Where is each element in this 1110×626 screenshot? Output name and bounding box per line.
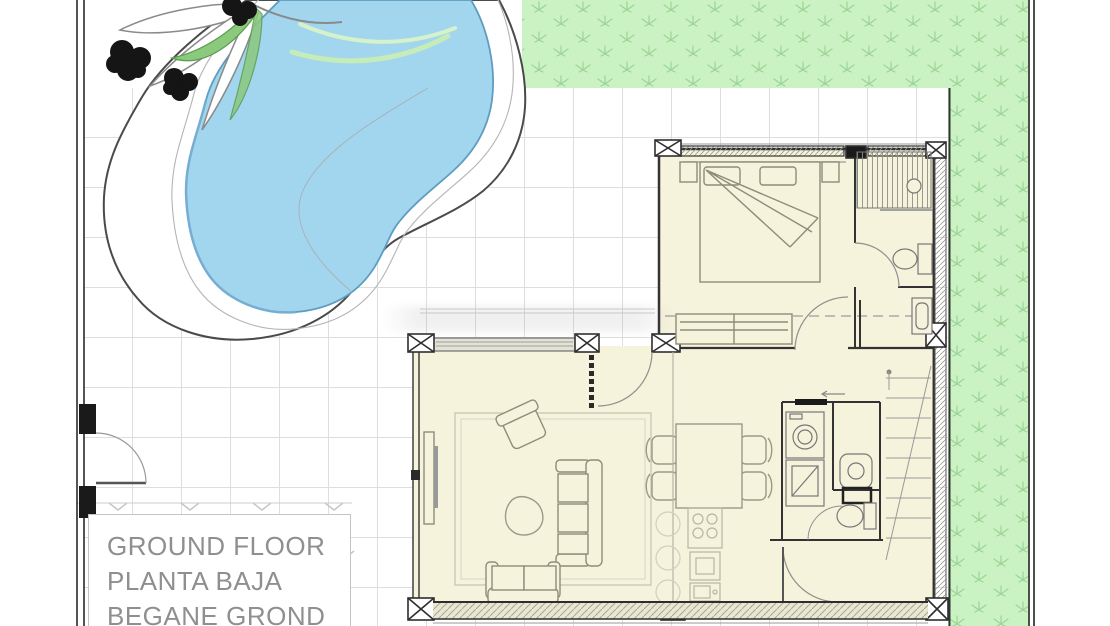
tv-cabinet (424, 432, 434, 524)
coffee-table (505, 497, 542, 535)
floor-plan-canvas: GROUND FLOOR PLANTA BAJA BEGANE GROND (0, 0, 1110, 626)
loveseat (486, 562, 560, 604)
nightstand-left (680, 162, 697, 182)
shower (857, 152, 931, 208)
laundry-sink (840, 454, 872, 488)
sofa-large (556, 460, 602, 566)
west-wall-mullion (411, 470, 420, 480)
title-line-nl: BEGANE GROND (107, 599, 350, 626)
utility-wall-block (795, 399, 827, 405)
title-line-es: PLANTA BAJA (107, 564, 350, 599)
wc-toilet-bowl (837, 505, 863, 527)
shower-head (907, 179, 921, 193)
toilet-tank (918, 244, 932, 274)
watermark (382, 306, 674, 332)
east-wall-hatch (935, 150, 946, 606)
tv-panel (434, 446, 438, 508)
nightstand-right (822, 162, 839, 182)
window-band-north-bedroom (681, 146, 844, 156)
dining-table (676, 424, 742, 508)
title-label-box: GROUND FLOOR PLANTA BAJA BEGANE GROND (88, 514, 351, 626)
title-line-en: GROUND FLOOR (107, 529, 350, 564)
toilet-bowl (893, 249, 917, 269)
pillow (760, 167, 796, 185)
wc-toilet-tank (864, 503, 876, 529)
window-band-living-north (434, 338, 575, 351)
